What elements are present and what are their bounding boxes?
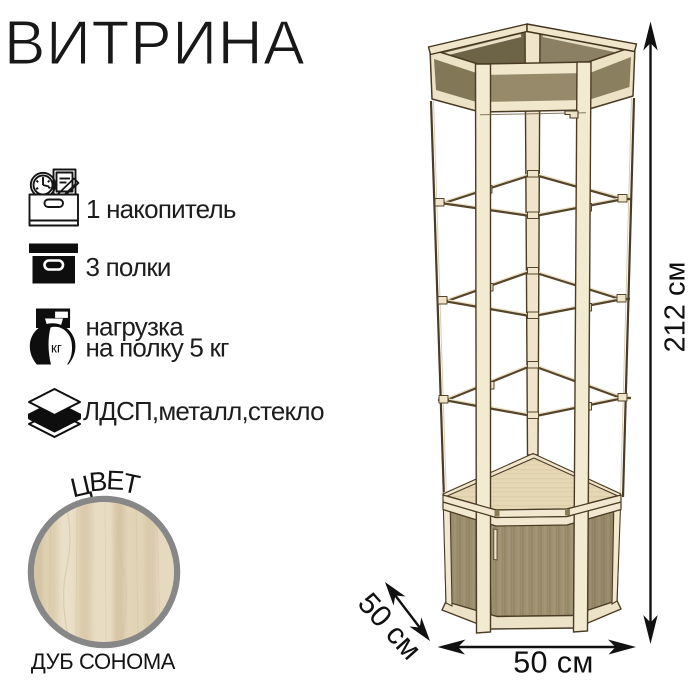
svg-text:1 накопитель: 1 накопитель	[86, 194, 236, 224]
svg-text:кг: кг	[51, 341, 62, 356]
svg-text:3 полки: 3 полки	[86, 252, 171, 282]
svg-text:на полку 5 кг: на полку 5 кг	[86, 333, 230, 363]
svg-text:50 см: 50 см	[513, 646, 594, 680]
svg-text:ДУБ СОНОМА: ДУБ СОНОМА	[31, 649, 176, 674]
svg-text:ЛДСП,металл,стекло: ЛДСП,металл,стекло	[83, 396, 324, 426]
svg-text:50 см: 50 см	[351, 587, 427, 667]
svg-text:212 см: 212 см	[660, 262, 692, 353]
